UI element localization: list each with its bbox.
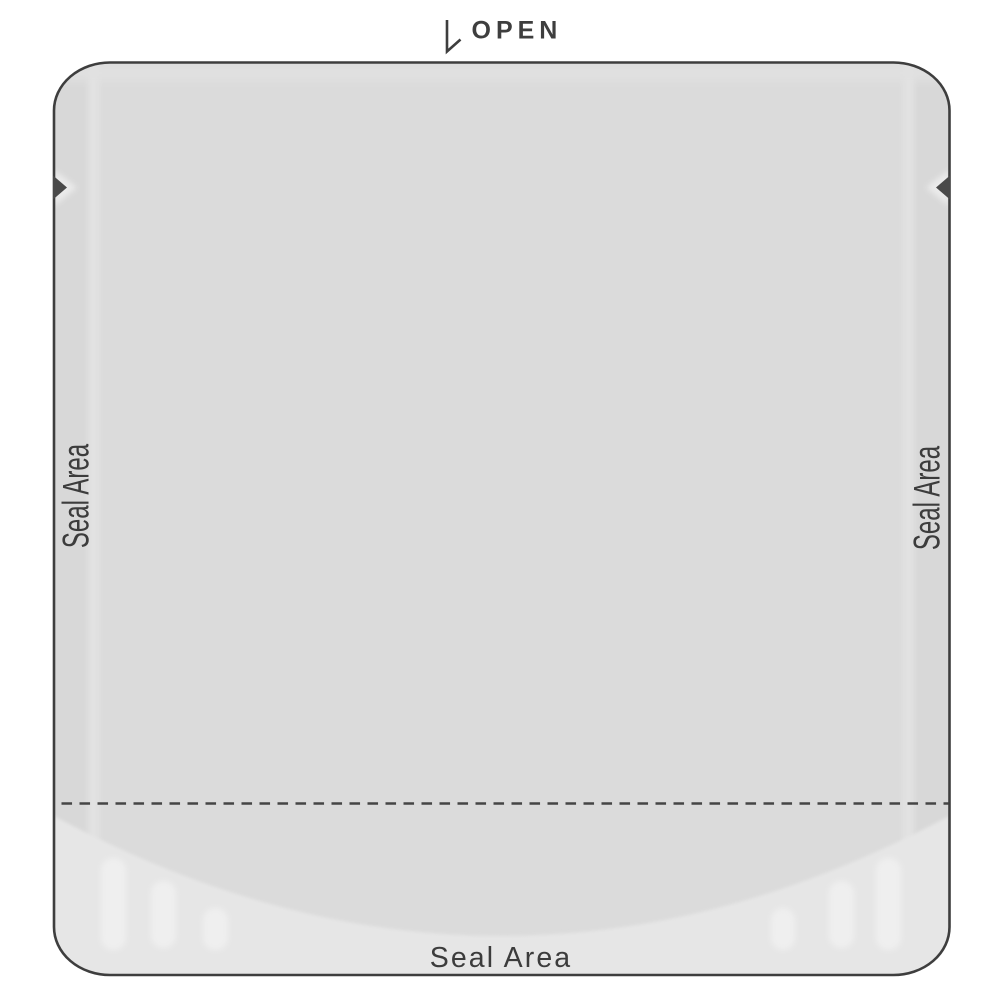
- svg-text:Seal Area: Seal Area: [906, 445, 948, 550]
- svg-text:Seal Area: Seal Area: [55, 443, 97, 548]
- svg-text:Seal Area: Seal Area: [430, 942, 573, 974]
- svg-text:OPEN: OPEN: [472, 17, 563, 45]
